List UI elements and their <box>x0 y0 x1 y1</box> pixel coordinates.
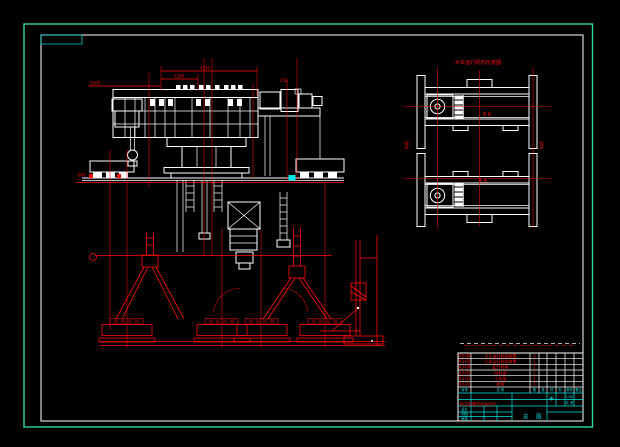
cluster-part <box>322 319 327 325</box>
bom-header-cell: 序号 <box>461 387 468 392</box>
bom-qty: 1 <box>533 359 536 364</box>
dim-label: 600 <box>78 173 86 178</box>
bom-code: A3-04 <box>459 365 471 370</box>
cluster-part <box>259 319 264 325</box>
cluster-part <box>252 319 257 325</box>
title-block-grid <box>458 393 583 421</box>
bom-header-cell: 数 <box>533 387 537 392</box>
white-node-dot <box>357 307 359 309</box>
bom-name: 大车运行机构装置 <box>485 352 517 358</box>
bom-header-cell: 料 <box>558 387 562 392</box>
sheet-count: 共 张 <box>566 400 574 405</box>
bogie-clusters <box>99 319 353 343</box>
drawing-title: 总 图 <box>523 413 545 421</box>
title-block-left-labels: 设计制图审核 <box>461 407 468 421</box>
cluster-part <box>131 319 136 325</box>
front-elevation-view <box>82 85 344 269</box>
tb-left-label: 审核 <box>461 416 468 421</box>
cluster-part <box>329 319 334 325</box>
tb-left-label: 制图 <box>461 411 468 416</box>
left-support-frame <box>116 232 184 319</box>
white-node-dot2 <box>371 340 373 342</box>
cluster-part <box>226 319 231 325</box>
middle-support-frame <box>263 228 331 319</box>
bom-header-cell: 单件 <box>566 387 573 392</box>
drive-unit <box>258 89 322 176</box>
title-block: A3-06大车运行机构装置1A3-05小车运行机构装置1A3-04起升机构1A3… <box>458 344 583 422</box>
bom-qty: 1 <box>533 376 536 381</box>
tb-left-label: 设计 <box>461 407 468 412</box>
bom-header-cell: 备注 <box>575 387 582 392</box>
bogie-upper <box>417 76 537 149</box>
cluster-part <box>212 319 217 325</box>
right-mast <box>320 235 383 345</box>
cluster-part <box>315 319 320 325</box>
bom-header-cell: 材 <box>550 387 554 392</box>
bom-code: A3-03 <box>459 370 471 375</box>
cyan-marker <box>289 175 296 181</box>
bogie-plan-views: 大车运行机构示意图 轨距 轨距 电 机 电 机 <box>403 58 551 228</box>
dim-label: 1200 <box>174 74 185 79</box>
bogie-lower <box>417 154 537 227</box>
gauge-label-right: 轨距 <box>538 141 544 149</box>
bom-name: 桥架 <box>497 381 505 387</box>
dim-label: 4500 <box>200 66 211 71</box>
cluster-part <box>205 319 210 325</box>
bom-header-cell: 名 称 <box>497 387 505 392</box>
cluster-part <box>245 319 250 325</box>
gauge-label-left: 轨距 <box>403 141 409 149</box>
cluster-part <box>138 319 143 325</box>
cluster-part <box>110 319 115 325</box>
cluster-part <box>237 325 287 336</box>
cluster-part <box>233 319 238 325</box>
motor-label-lower: 电 机 <box>478 177 487 183</box>
scale-value: 1:50 <box>566 395 573 399</box>
bom-name: 司机室 <box>495 369 507 375</box>
bom-header-cell: 量 <box>541 387 545 392</box>
bom-qty: 1 <box>533 382 536 387</box>
cluster-part <box>219 319 224 325</box>
motor-label-upper: 电 机 <box>482 111 491 117</box>
zone-box <box>41 35 82 44</box>
bom-qty: 1 <box>533 353 536 358</box>
bom-name: 起升机构 <box>493 364 509 370</box>
bom-code: A3-05 <box>459 359 471 364</box>
bom-qty: 1 <box>533 365 536 370</box>
bogie-view-title: 大车运行机构示意图 <box>455 58 502 66</box>
cluster-part <box>273 319 278 325</box>
cluster-part <box>266 319 271 325</box>
cad-drawing-canvas: 大车运行机构示意图 轨距 轨距 电 机 电 机 A3-06大车运行机构装置1A3… <box>0 0 620 447</box>
bom-header-row: 序号名 称数量材料单件备注 <box>461 387 582 392</box>
cluster-part <box>308 319 313 325</box>
travel-gear-plan-view <box>90 150 386 348</box>
bom-code: A3-02 <box>459 376 471 381</box>
cluster-part <box>124 319 129 325</box>
bom-code: A3-06 <box>459 353 471 358</box>
project-name: 桥式起重机总体设计 <box>460 400 496 406</box>
bom-grid <box>458 353 583 393</box>
stamp-mark: ✳ <box>549 395 555 403</box>
crane-general-drawing: 大车运行机构示意图 轨距 轨距 电 机 电 机 A3-06大车运行机构装置1A3… <box>0 0 620 447</box>
bom-code: A3-01 <box>459 382 471 387</box>
dim-label: 3200 <box>90 80 101 85</box>
bom-qty: 1 <box>533 370 536 375</box>
cluster-part <box>117 319 122 325</box>
bom-name: 小车架 <box>495 375 507 381</box>
cluster-part <box>336 319 341 325</box>
bom-name: 小车运行机构装置 <box>485 358 517 364</box>
center-column <box>164 138 249 179</box>
top-fittings <box>150 85 243 106</box>
dim-label: 250 <box>280 78 288 83</box>
